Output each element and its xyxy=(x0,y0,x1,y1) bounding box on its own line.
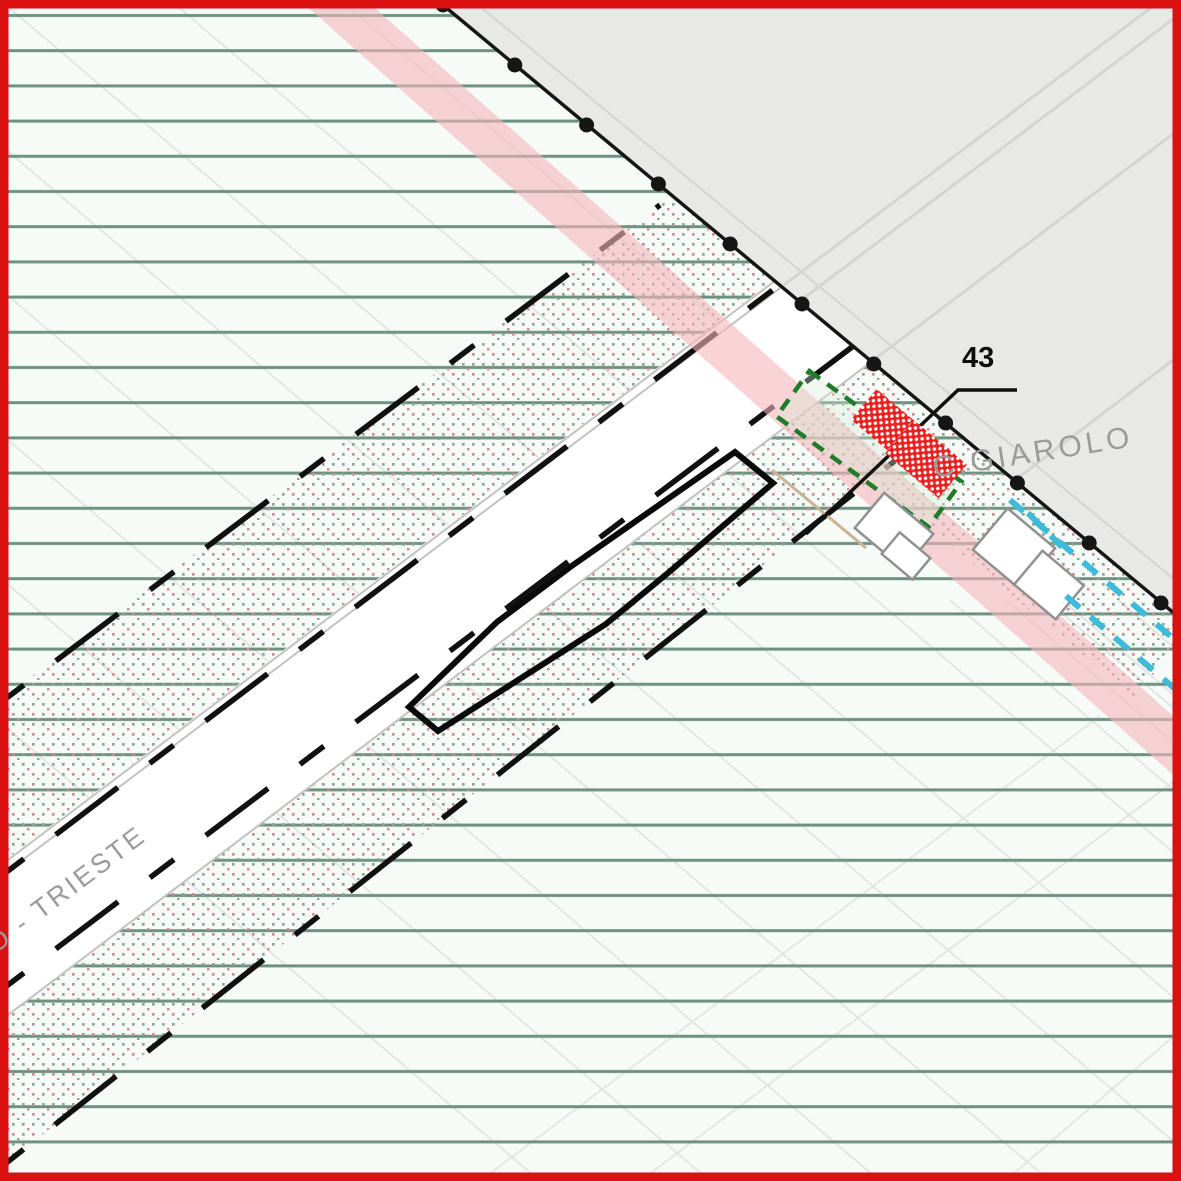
map-drawing xyxy=(0,0,1181,1181)
zoning-map-canvas: 43 C.GIAROLO O - TRIESTE xyxy=(0,0,1181,1181)
